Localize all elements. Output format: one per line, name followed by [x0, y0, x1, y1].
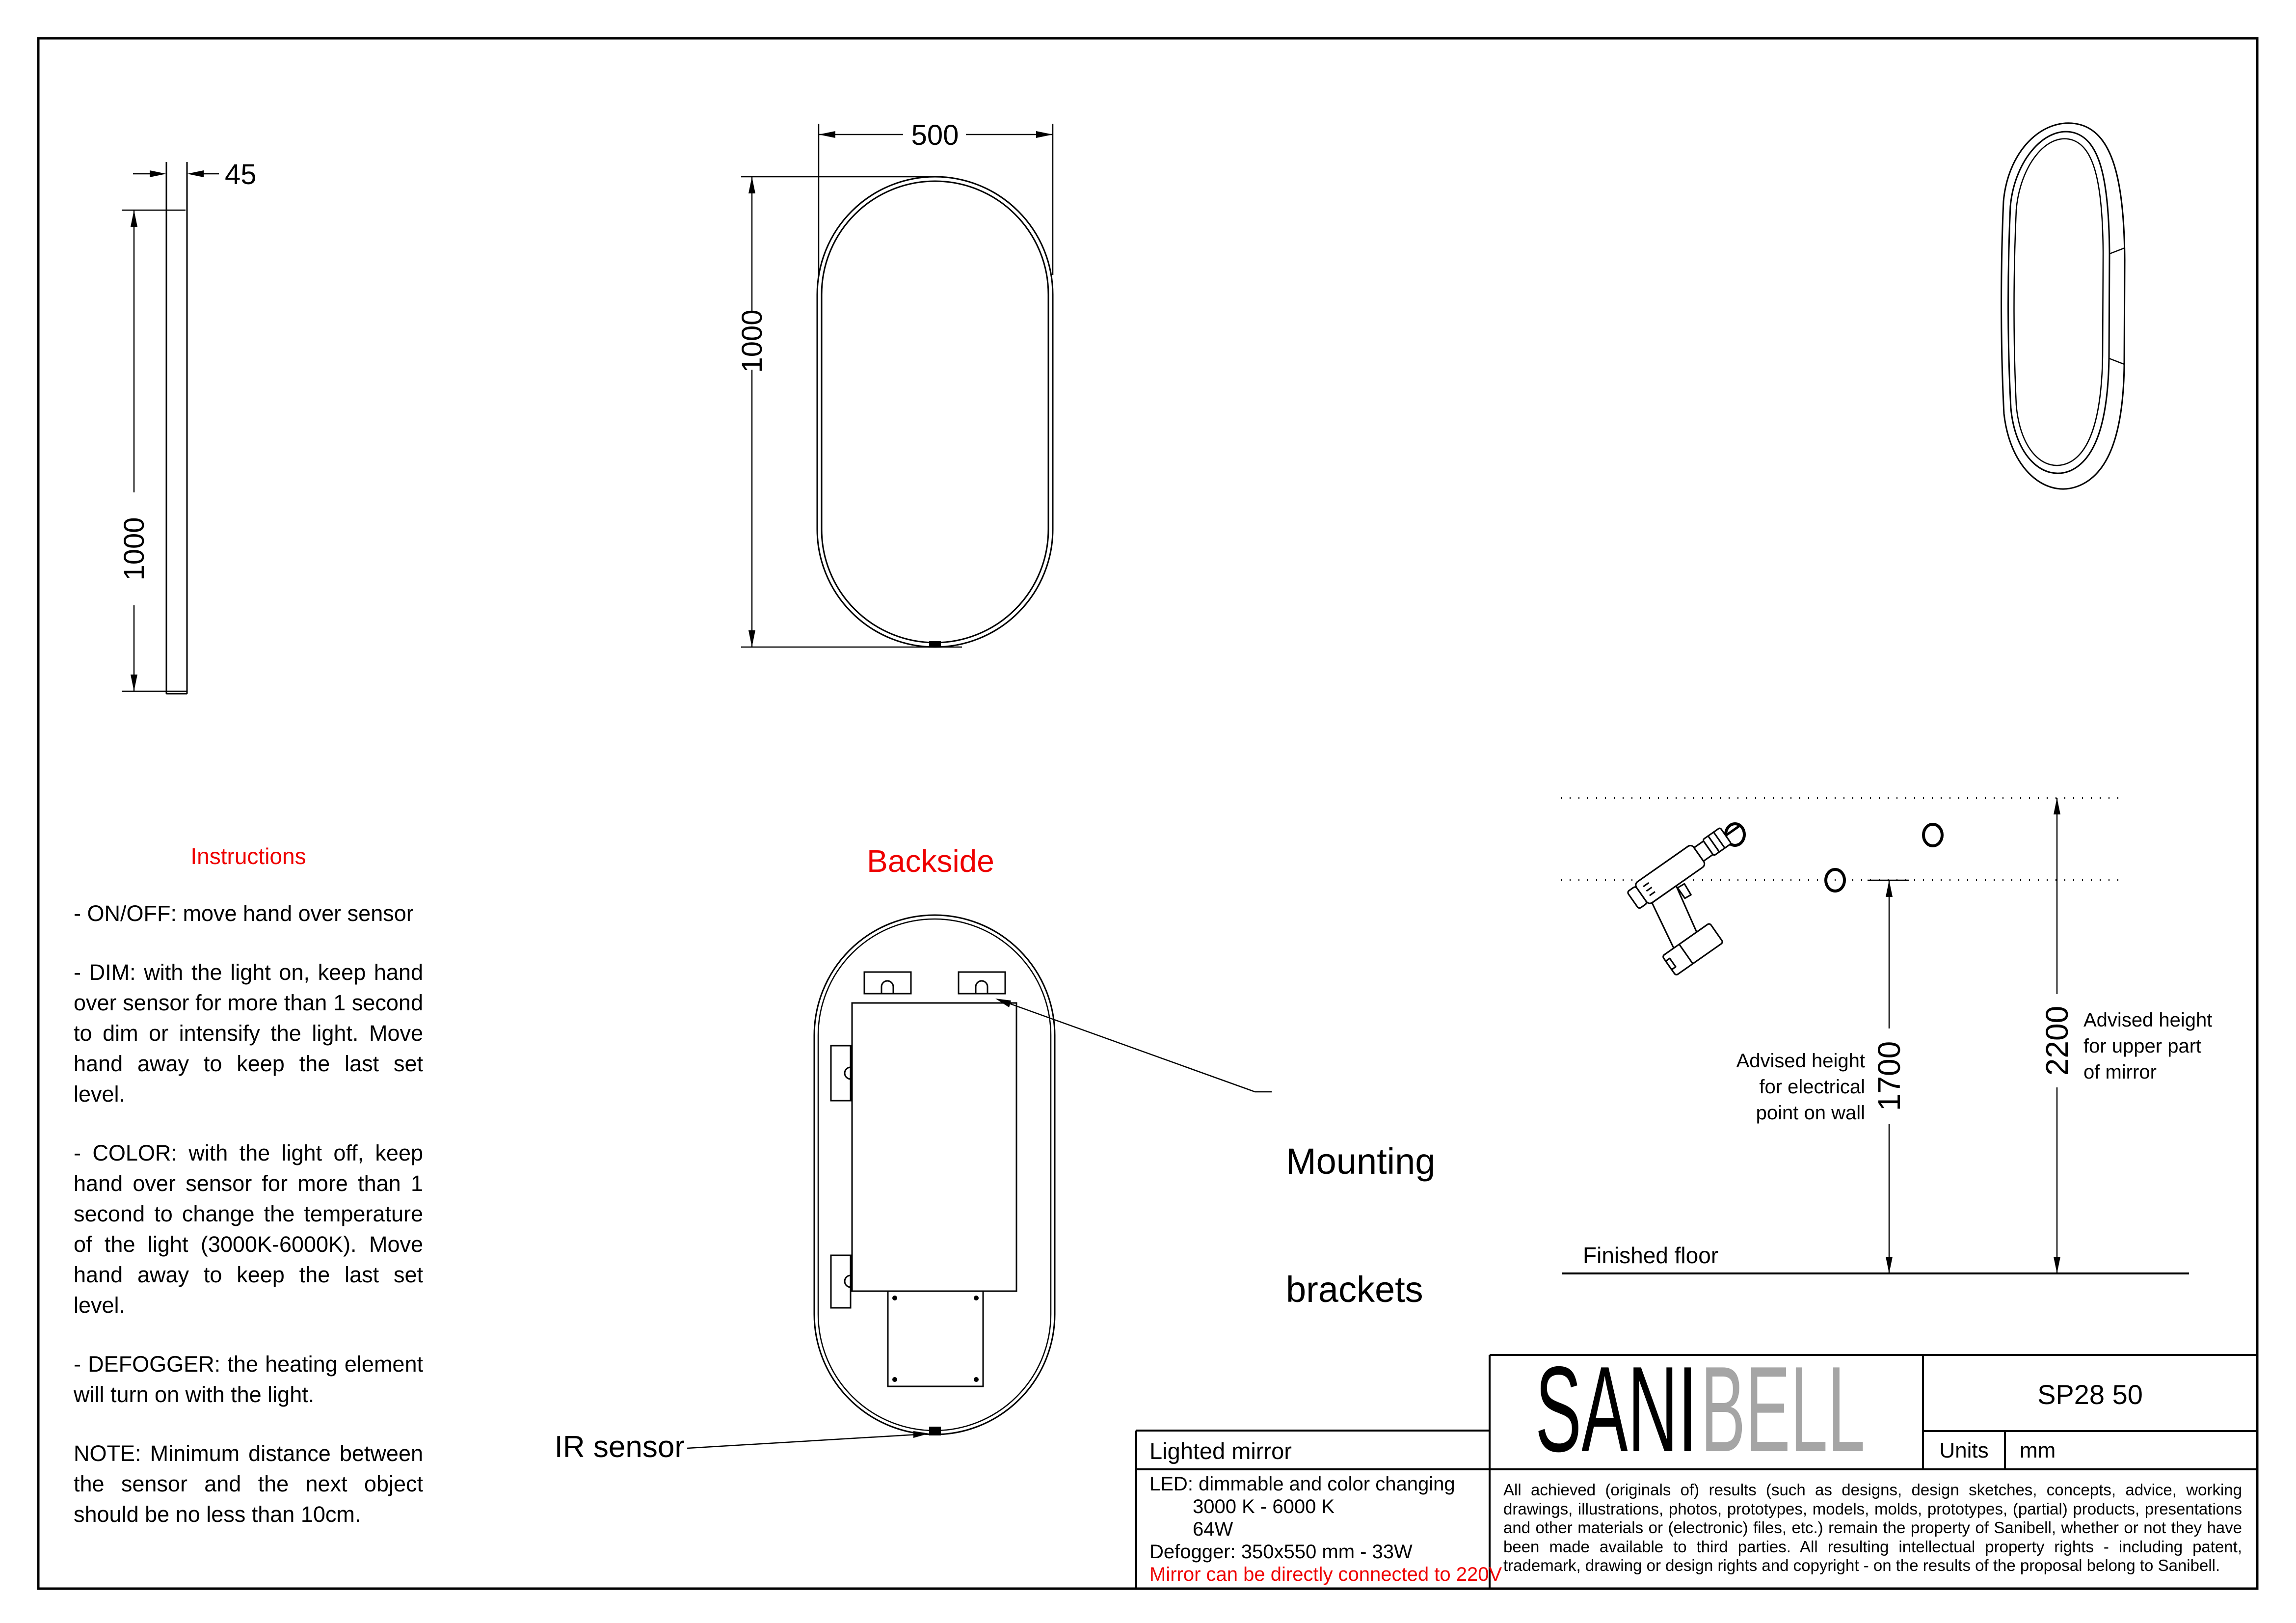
- dim-arrow: [2054, 1257, 2060, 1273]
- side-height-dim: 1000: [118, 517, 150, 580]
- instructions-block: Instructions - ON/OFF: move hand over se…: [74, 842, 423, 1530]
- dim-arrow: [1036, 131, 1053, 138]
- units-value: mm: [2020, 1438, 2056, 1463]
- instruction-note: NOTE: Minimum distance between the senso…: [74, 1438, 423, 1530]
- perspective-view: [2002, 123, 2125, 489]
- product-specs: LED: dimmable and color changing 3000 K …: [1149, 1473, 1478, 1586]
- dim-arrow: [131, 210, 137, 227]
- logo-part-gray: BELL: [1701, 1341, 1865, 1477]
- dim-arrow: [748, 630, 755, 647]
- dim-arrow: [150, 170, 166, 177]
- dim-arrow: [748, 177, 755, 193]
- front-width-dim: 500: [911, 119, 959, 151]
- product-title: Lighted mirror: [1149, 1437, 1292, 1464]
- sanibell-logo: SANI BELL: [1535, 1341, 1865, 1477]
- side-view: 45 1000: [118, 159, 257, 694]
- defogger-pad: [888, 1291, 983, 1386]
- mounting-bracket-left-lower: [831, 1255, 851, 1308]
- ir-sensor-mark: [929, 1427, 941, 1435]
- advised-mirror-label: Advised height for upper part of mirror: [2083, 1007, 2250, 1085]
- side-thickness-dim: 45: [225, 159, 257, 190]
- instruction-onoff: - ON/OFF: move hand over sensor: [74, 898, 423, 929]
- spec-watt: 64W: [1149, 1518, 1478, 1541]
- spec-led: LED: dimmable and color changing: [1149, 1473, 1478, 1495]
- units-label: Units: [1923, 1438, 2005, 1463]
- ir-leader-line: [687, 1434, 926, 1448]
- mounting-bracket-left-upper: [831, 1046, 851, 1101]
- mounting-bracket-top-right: [959, 972, 1005, 994]
- mounting-brackets-label: Mounting brackets: [1286, 1055, 1435, 1396]
- instruction-dim: - DIM: with the light on, keep hand over…: [74, 957, 423, 1109]
- finished-floor-label: Finished floor: [1583, 1242, 1718, 1269]
- legal-text: All achieved (originals of) results (suc…: [1503, 1481, 2242, 1575]
- spec-defogger: Defogger: 350x550 mm - 33W: [1149, 1541, 1478, 1563]
- backside-view: Backside: [687, 843, 1272, 1448]
- dim-arrow: [819, 131, 835, 138]
- ir-sensor-front-mark: [929, 641, 941, 647]
- front-height-dim: 1000: [736, 309, 768, 373]
- spec-sheet: 45 1000 500: [0, 0, 2296, 1623]
- drill-illustration: [1619, 815, 1789, 975]
- mounting-leader-line: [998, 1000, 1272, 1092]
- electrical-height-dim: 1700: [1871, 1041, 1907, 1111]
- dim-arrow: [1886, 880, 1893, 897]
- instructions-title: Instructions: [74, 842, 423, 870]
- dim-arrow: [2054, 798, 2060, 814]
- advised-electrical-label: Advised height for electrical point on w…: [1659, 1048, 1865, 1126]
- mirror-height-dim: 2200: [2039, 1006, 2075, 1076]
- front-view: 500 1000: [736, 119, 1053, 647]
- instruction-defogger: - DEFOGGER: the heating element will tur…: [74, 1349, 423, 1410]
- drill-hole: [1923, 824, 1942, 846]
- backside-title: Backside: [867, 843, 994, 879]
- led-driver-housing: [852, 1003, 1016, 1291]
- spec-warning: Mirror can be directly connected to 220V: [1149, 1563, 1478, 1586]
- dim-arrow: [1886, 1257, 1893, 1273]
- mounting-bracket-top-left: [864, 972, 911, 994]
- dim-arrow: [131, 675, 137, 691]
- model-number: SP28 50: [1923, 1379, 2257, 1410]
- logo-part-black: SANI: [1535, 1341, 1697, 1477]
- instruction-color: - COLOR: with the light off, keep hand o…: [74, 1138, 423, 1321]
- spec-temp: 3000 K - 6000 K: [1149, 1495, 1478, 1518]
- dim-arrow: [187, 170, 204, 177]
- ir-sensor-label: IR sensor: [518, 1430, 685, 1464]
